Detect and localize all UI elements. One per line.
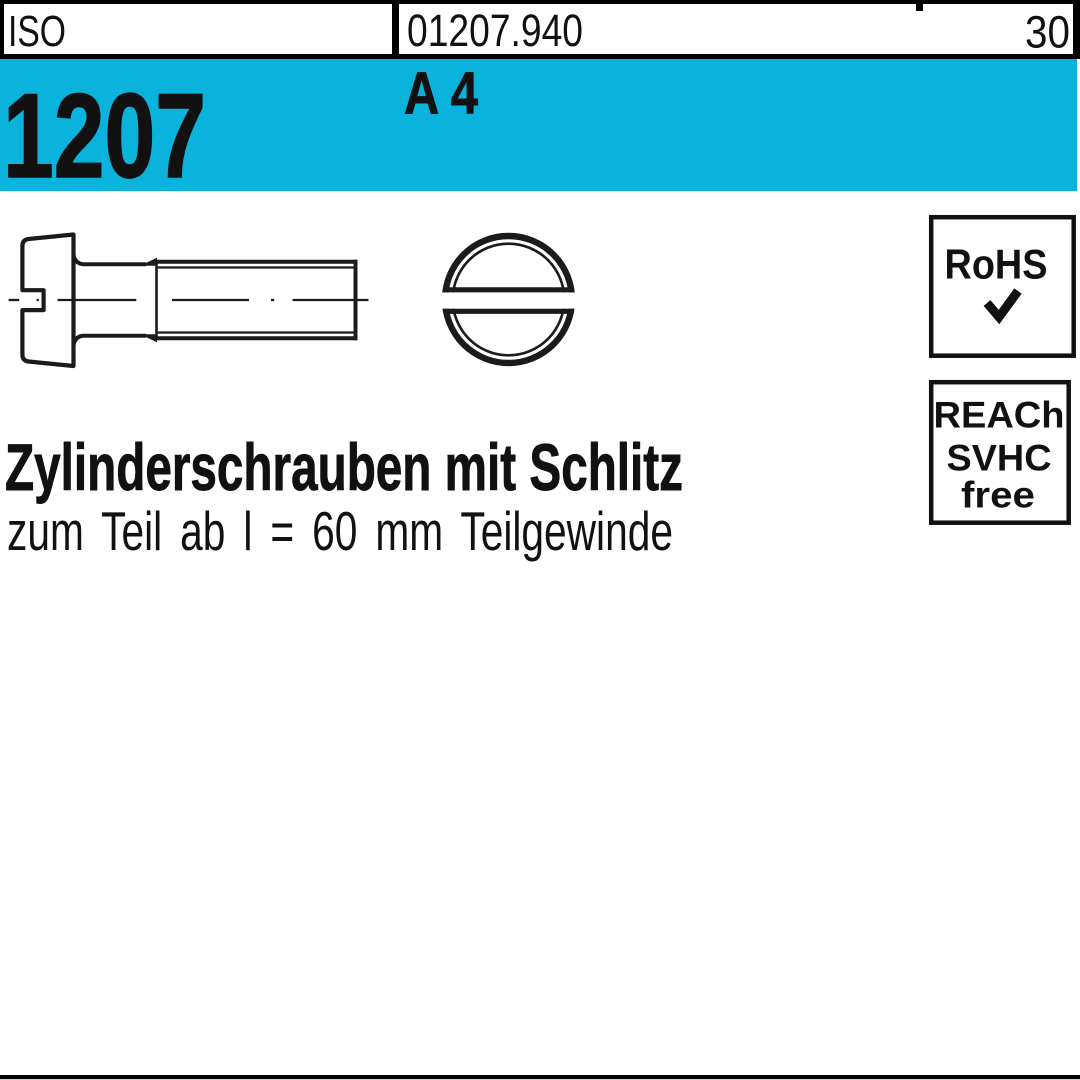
svg-text:zum Teil ab l = 60 mm Teilgewi: zum Teil ab l = 60 mm Teilgewinde <box>7 500 673 562</box>
svg-text:ISO: ISO <box>8 7 66 56</box>
svg-text:Zylinderschrauben mit Schlitz: Zylinderschrauben mit Schlitz <box>5 431 683 504</box>
svg-text:RoHS: RoHS <box>945 241 1048 288</box>
svg-text:free: free <box>961 475 1035 516</box>
svg-text:REACh: REACh <box>934 395 1065 436</box>
svg-text:SVHC: SVHC <box>947 437 1052 479</box>
svg-text:1207: 1207 <box>3 69 206 203</box>
svg-text:30: 30 <box>1025 7 1070 58</box>
svg-text:A 4: A 4 <box>404 61 478 127</box>
svg-text:01207.940: 01207.940 <box>407 5 583 56</box>
